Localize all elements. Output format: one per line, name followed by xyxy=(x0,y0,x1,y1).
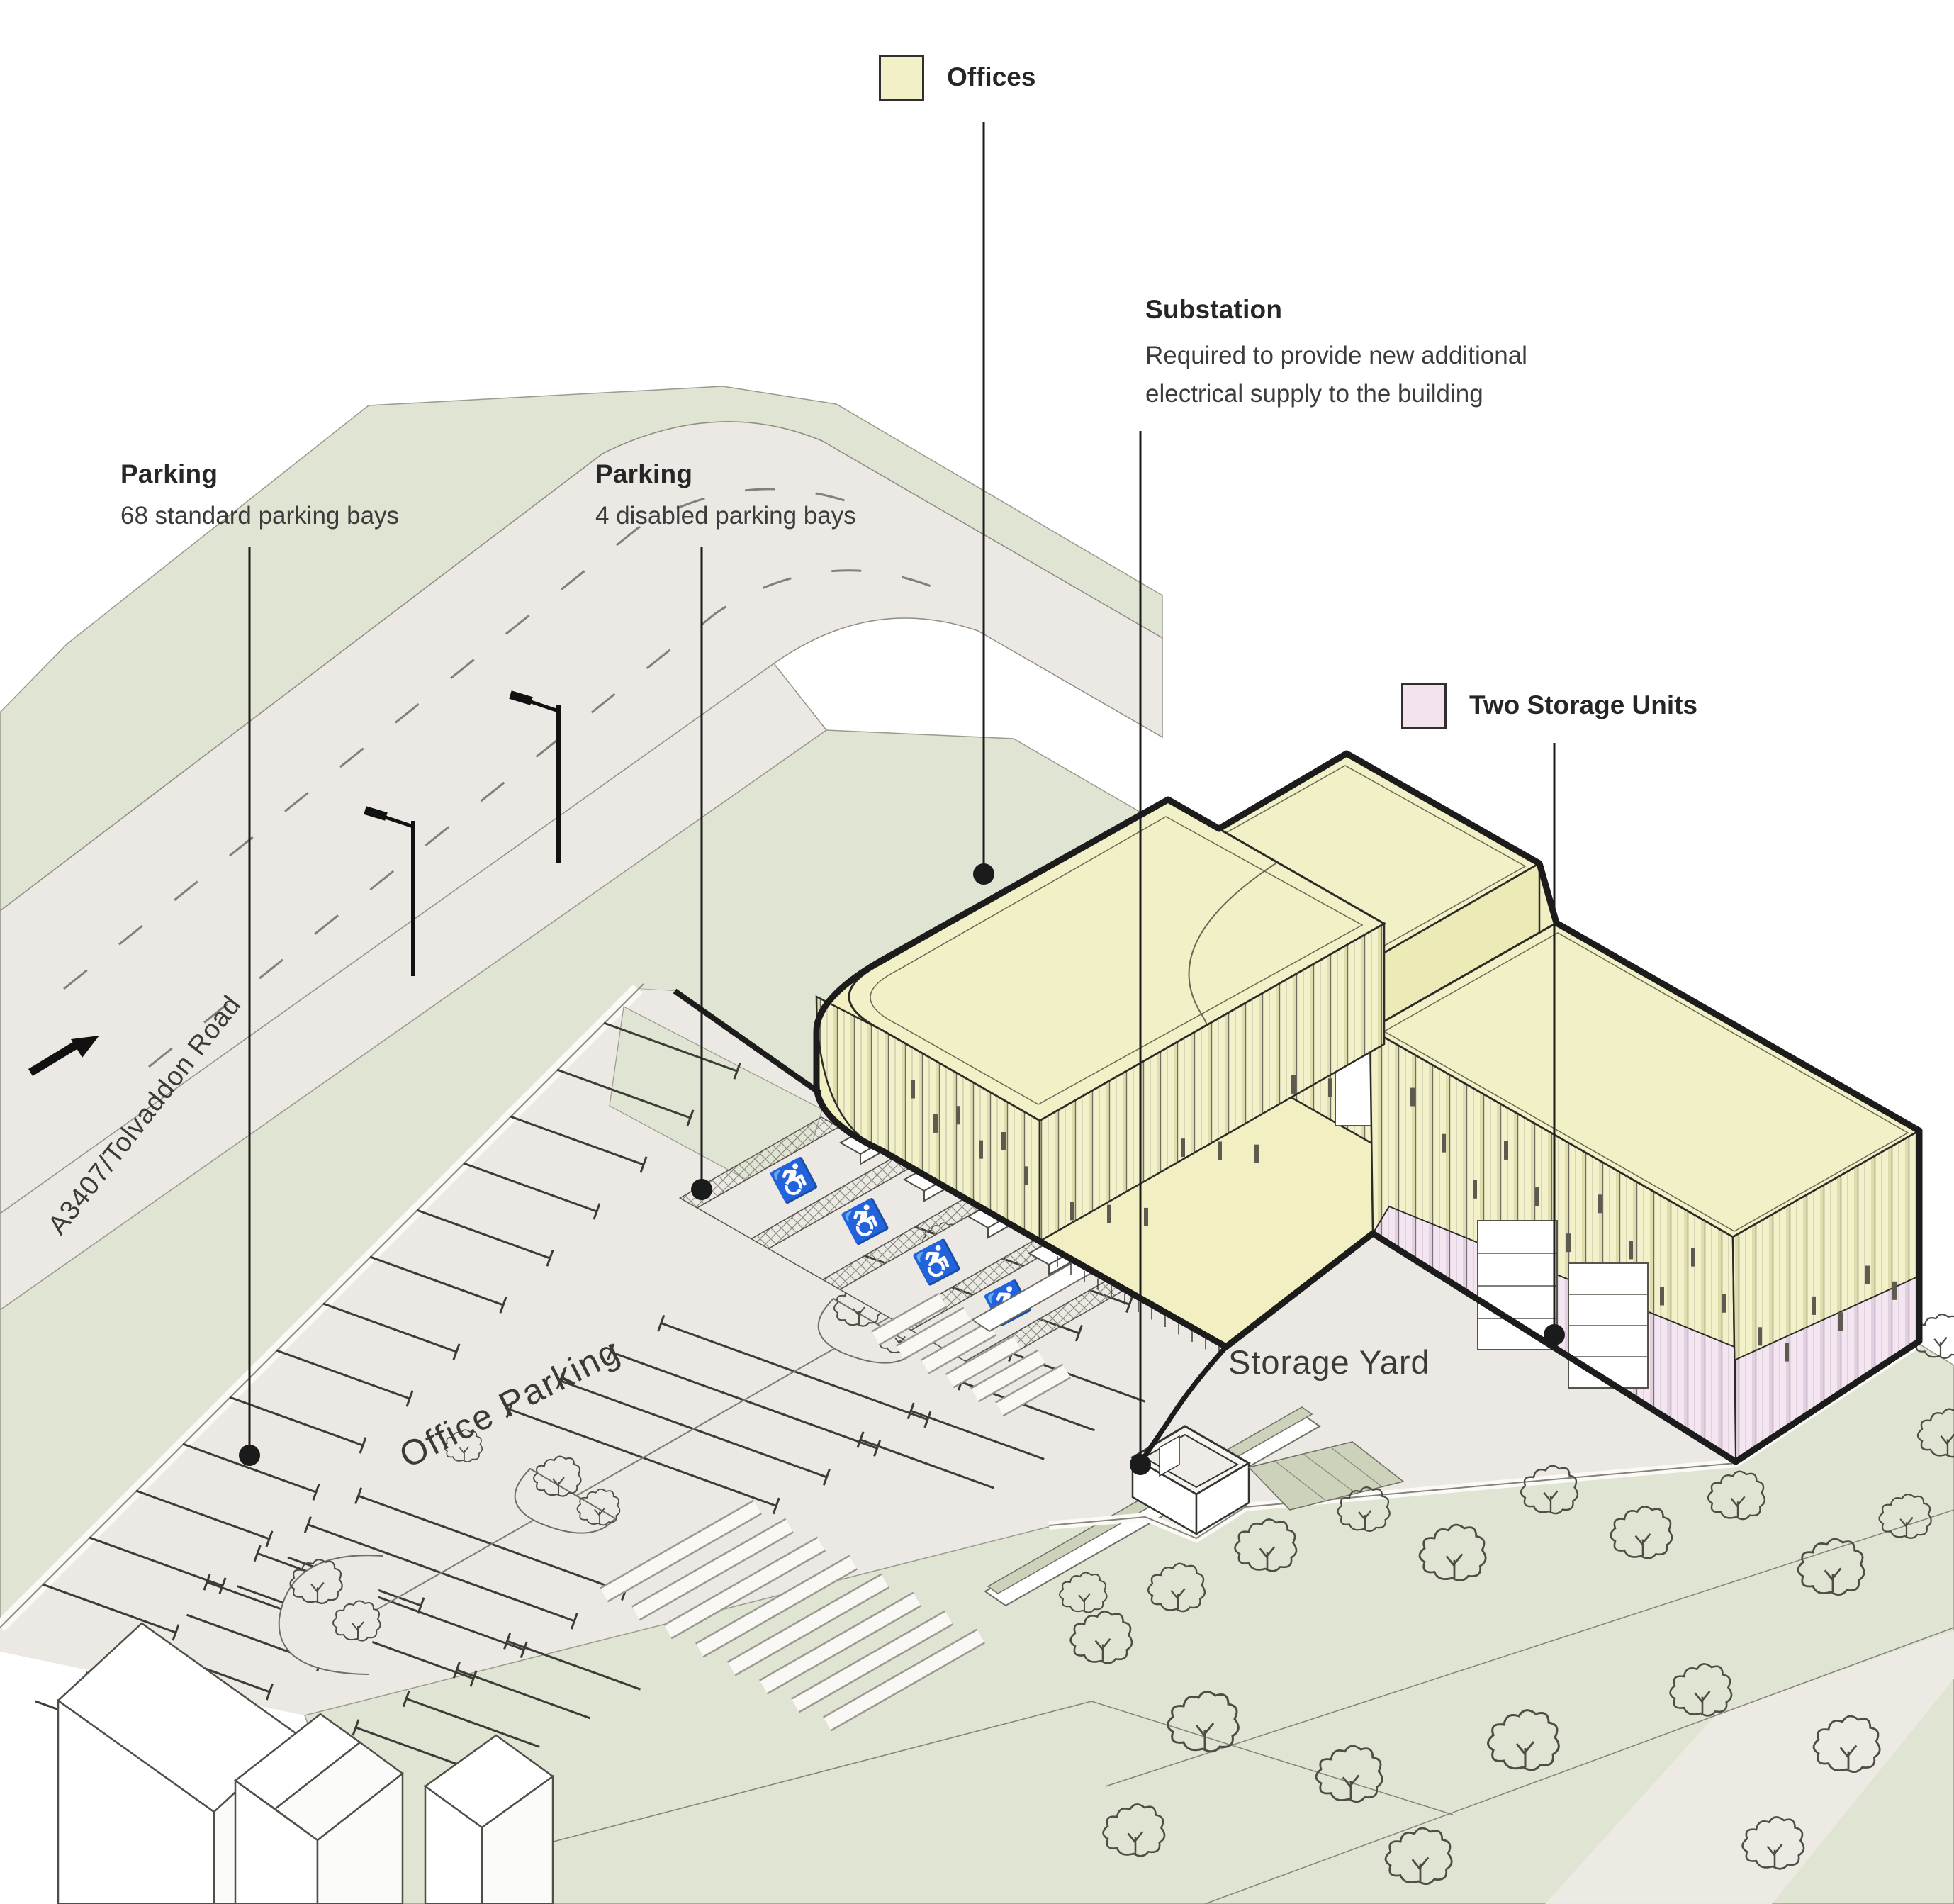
parking-standard-description: 68 standard parking bays xyxy=(120,502,399,530)
annotation-parking-disabled: Parking 4 disabled parking bays xyxy=(595,459,856,530)
annotation-substation: Substation Required to provide new addit… xyxy=(1145,295,1527,408)
site-diagram: ♿♿♿♿ xyxy=(0,0,1954,1904)
parking-disabled-description: 4 disabled parking bays xyxy=(595,502,856,530)
substation-description-line1: Required to provide new additional xyxy=(1145,342,1527,370)
annotation-parking-standard: Parking 68 standard parking bays xyxy=(120,459,399,530)
substation-description-line2: electrical supply to the building xyxy=(1145,380,1527,408)
parking-standard-title: Parking xyxy=(120,459,399,489)
storage-units-swatch xyxy=(1401,683,1447,729)
substation-title: Substation xyxy=(1145,295,1527,325)
legend-two-storage-units: Two Storage Units xyxy=(1401,683,1697,729)
storage-yard-label: Storage Yard xyxy=(1228,1343,1430,1381)
offices-swatch xyxy=(879,55,924,101)
parking-disabled-title: Parking xyxy=(595,459,856,489)
legend-offices: Offices xyxy=(879,55,1035,101)
offices-label: Offices xyxy=(947,62,1035,92)
storage-units-label: Two Storage Units xyxy=(1469,690,1697,720)
